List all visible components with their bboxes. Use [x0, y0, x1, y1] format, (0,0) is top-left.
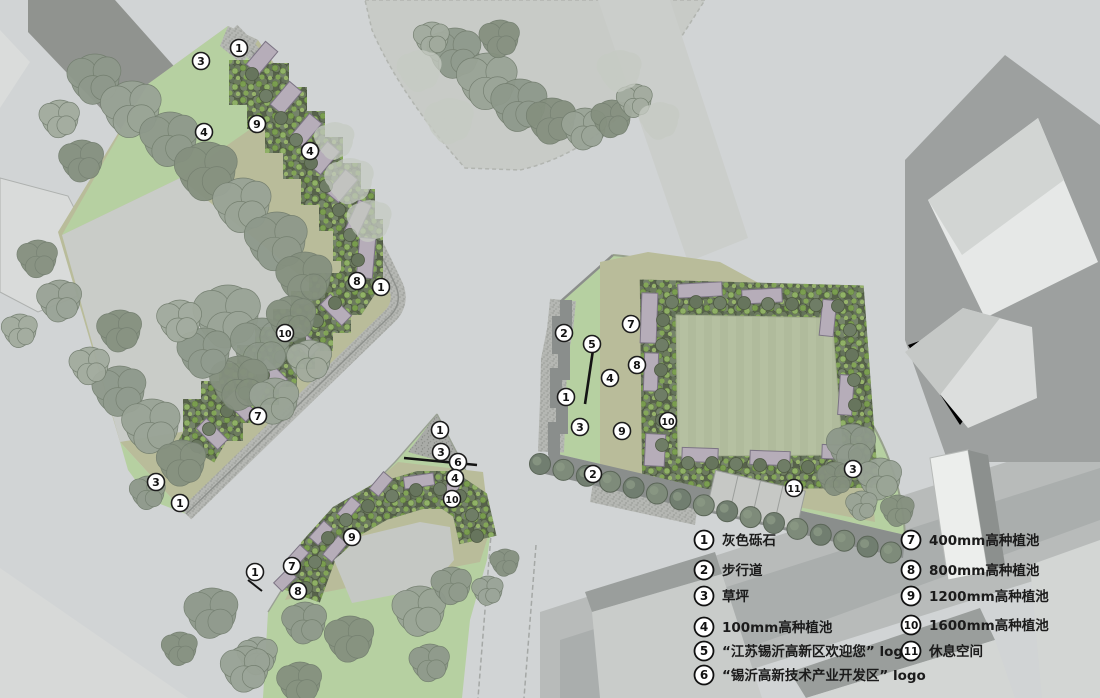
street-tree	[600, 471, 621, 492]
svg-text:2: 2	[560, 327, 568, 340]
svg-text:1: 1	[436, 424, 444, 437]
legend-number: 8	[907, 563, 915, 577]
plan-marker-3: 3	[572, 419, 589, 436]
legend-number: 2	[700, 563, 708, 577]
bed-tree	[706, 457, 719, 470]
svg-text:1: 1	[251, 566, 259, 579]
plan-marker-1: 1	[231, 40, 248, 57]
bed-tree	[275, 112, 288, 125]
legend-label: 灰色砾石	[722, 532, 776, 549]
legend-label: 100mm高种植池	[722, 619, 833, 636]
plan-marker-2: 2	[585, 466, 602, 483]
planter-wall	[678, 282, 723, 298]
legend-item-1: 1灰色砾石	[695, 531, 777, 550]
plan-marker-10: 10	[660, 413, 677, 430]
plan-marker-3: 3	[148, 474, 165, 491]
plan-marker-9: 9	[614, 423, 631, 440]
bed-tree	[386, 490, 399, 503]
plan-marker-3: 3	[845, 461, 862, 478]
bed-tree	[656, 439, 669, 452]
street-tree	[787, 518, 808, 539]
svg-text:8: 8	[353, 275, 361, 288]
street-tree	[834, 530, 855, 551]
svg-text:3: 3	[197, 55, 205, 68]
svg-text:1: 1	[377, 281, 385, 294]
street-tree	[670, 489, 691, 510]
street-tree	[693, 495, 714, 516]
legend-label: 休息空间	[928, 643, 983, 660]
legend-item-2: 2步行道	[695, 561, 763, 580]
bed-tree	[738, 297, 751, 310]
bed-tree	[655, 389, 668, 402]
plan-marker-11: 11	[786, 480, 803, 497]
plan-marker-2: 2	[556, 325, 573, 342]
plan-marker-4: 4	[302, 143, 319, 160]
bed-tree	[352, 254, 365, 267]
bed-tree	[309, 556, 322, 569]
bed-tree	[203, 423, 216, 436]
street-tree	[881, 542, 902, 563]
bed-tree	[762, 298, 775, 311]
plan-marker-8: 8	[629, 357, 646, 374]
street-tree	[764, 513, 785, 534]
plan-marker-4: 4	[602, 370, 619, 387]
svg-text:10: 10	[278, 329, 292, 340]
bed-tree	[802, 461, 815, 474]
plan-marker-6: 6	[450, 454, 467, 471]
plan-marker-7: 7	[250, 408, 267, 425]
plan-marker-9: 9	[249, 116, 266, 133]
svg-text:3: 3	[152, 476, 160, 489]
bed-tree	[849, 399, 862, 412]
svg-text:3: 3	[849, 463, 857, 476]
legend-label: 800mm高种植池	[929, 562, 1040, 579]
planter-wall	[640, 293, 658, 344]
bed-tree	[810, 299, 823, 312]
bed-tree	[362, 500, 375, 513]
plan-marker-9: 9	[344, 529, 361, 546]
legend-label: 400mm高种植池	[929, 532, 1040, 549]
legend-number: 3	[700, 589, 708, 603]
legend-number: 6	[700, 668, 708, 682]
svg-text:11: 11	[787, 484, 800, 495]
legend-label: 草坪	[722, 588, 750, 605]
bed-tree	[410, 484, 423, 497]
plan-marker-1: 1	[172, 495, 189, 512]
bed-tree	[714, 297, 727, 310]
legend-number: 9	[907, 589, 915, 603]
bed-tree	[260, 90, 273, 103]
svg-text:8: 8	[294, 585, 302, 598]
svg-text:3: 3	[437, 446, 445, 459]
street-tree	[740, 507, 761, 528]
svg-text:5: 5	[588, 338, 596, 351]
street-tree	[647, 483, 668, 504]
parcel-e-walk	[554, 300, 566, 455]
svg-text:1: 1	[176, 497, 184, 510]
street-tree	[623, 477, 644, 498]
plan-marker-5: 5	[584, 336, 601, 353]
plan-marker-1: 1	[247, 564, 264, 581]
bed-tree	[471, 530, 484, 543]
plan-marker-3: 3	[193, 53, 210, 70]
plan-marker-1: 1	[558, 389, 575, 406]
bed-tree	[690, 296, 703, 309]
bed-tree	[666, 296, 679, 309]
plan-marker-1: 1	[432, 422, 449, 439]
bed-tree	[656, 339, 669, 352]
street-tree	[530, 454, 551, 475]
street-tree	[857, 536, 878, 557]
bed-tree	[778, 460, 791, 473]
plan-marker-1: 1	[373, 279, 390, 296]
svg-text:4: 4	[606, 372, 614, 385]
svg-text:4: 4	[200, 126, 208, 139]
svg-text:10: 10	[445, 495, 459, 506]
site-plan-canvas: 134948110731136410978125784139102113 1灰色…	[0, 0, 1100, 698]
plan-marker-7: 7	[623, 316, 640, 333]
street-tree	[810, 524, 831, 545]
bed-tree	[466, 509, 479, 522]
legend-label: 1200mm高种植池	[929, 588, 1049, 605]
bed-tree	[754, 459, 767, 472]
bed-tree	[848, 374, 861, 387]
svg-text:2: 2	[589, 468, 597, 481]
svg-text:9: 9	[618, 425, 626, 438]
bed-tree	[846, 349, 859, 362]
bed-tree	[655, 364, 668, 377]
legend-label: “锡沂高新技术产业开发区” logo	[722, 667, 926, 684]
legend-item-11: 11休息空间	[902, 642, 984, 661]
legend-number: 10	[904, 620, 919, 632]
plan-marker-4: 4	[447, 470, 464, 487]
plan-marker-10: 10	[444, 491, 461, 508]
legend-number: 7	[907, 533, 915, 547]
legend-label: 步行道	[722, 562, 763, 579]
legend-item-5: 5“江苏锡沂高新区欢迎您” logo	[695, 642, 913, 661]
svg-text:7: 7	[254, 410, 262, 423]
bed-tree	[322, 532, 335, 545]
svg-text:9: 9	[348, 531, 356, 544]
svg-text:7: 7	[288, 560, 296, 573]
bed-tree	[657, 314, 670, 327]
bed-tree	[730, 458, 743, 471]
svg-text:1: 1	[562, 391, 570, 404]
plan-marker-4: 4	[196, 124, 213, 141]
legend-number: 4	[700, 620, 708, 634]
plan-marker-10: 10	[277, 325, 294, 342]
svg-text:4: 4	[306, 145, 314, 158]
bed-tree	[290, 134, 303, 147]
bed-tree	[340, 514, 353, 527]
svg-text:9: 9	[253, 118, 261, 131]
legend-item-3: 3草坪	[695, 587, 750, 606]
legend-number: 11	[904, 646, 919, 658]
legend-number: 1	[700, 533, 708, 547]
bed-tree	[246, 68, 259, 81]
bed-tree	[786, 298, 799, 311]
legend-label: 1600mm高种植池	[929, 617, 1049, 634]
plan-marker-7: 7	[284, 558, 301, 575]
street-tree	[553, 459, 574, 480]
bed-tree	[844, 324, 857, 337]
svg-text:3: 3	[576, 421, 584, 434]
plan-marker-8: 8	[349, 273, 366, 290]
legend-label: “江苏锡沂高新区欢迎您” logo	[722, 643, 912, 660]
bed-tree	[832, 300, 845, 313]
bed-tree	[333, 204, 346, 217]
bed-tree	[682, 457, 695, 470]
site-plan-image: 134948110731136410978125784139102113 1灰色…	[0, 0, 1100, 698]
svg-text:1: 1	[235, 42, 243, 55]
svg-text:6: 6	[454, 456, 462, 469]
plan-marker-8: 8	[290, 583, 307, 600]
legend-item-6: 6“锡沂高新技术产业开发区” logo	[695, 666, 926, 685]
svg-text:7: 7	[627, 318, 635, 331]
svg-text:10: 10	[661, 417, 675, 428]
plan-marker-3: 3	[433, 444, 450, 461]
street-tree	[717, 501, 738, 522]
svg-text:8: 8	[633, 359, 641, 372]
bed-tree	[329, 297, 342, 310]
parcel-e-central-lawn	[676, 315, 843, 456]
legend-number: 5	[700, 644, 708, 658]
svg-text:4: 4	[451, 472, 459, 485]
canopy-tree	[277, 662, 322, 698]
